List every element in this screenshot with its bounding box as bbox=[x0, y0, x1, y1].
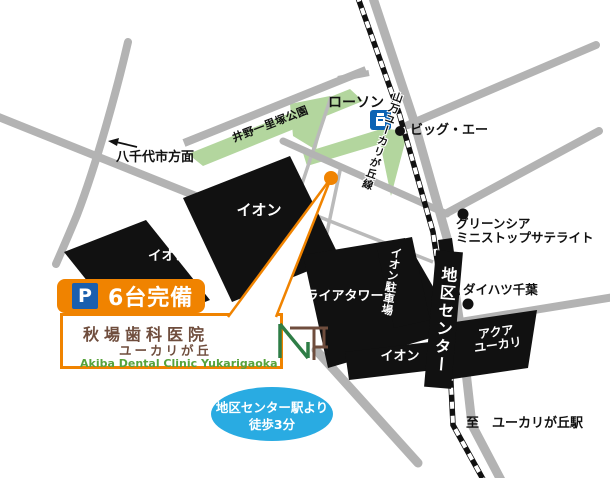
clinic-location-dot bbox=[324, 171, 338, 185]
callout-layer bbox=[0, 0, 610, 478]
access-map: ローソン 山万ユーカリが丘線 ビッグ・エー グリーンシア ミニストップサテライト… bbox=[0, 0, 610, 478]
